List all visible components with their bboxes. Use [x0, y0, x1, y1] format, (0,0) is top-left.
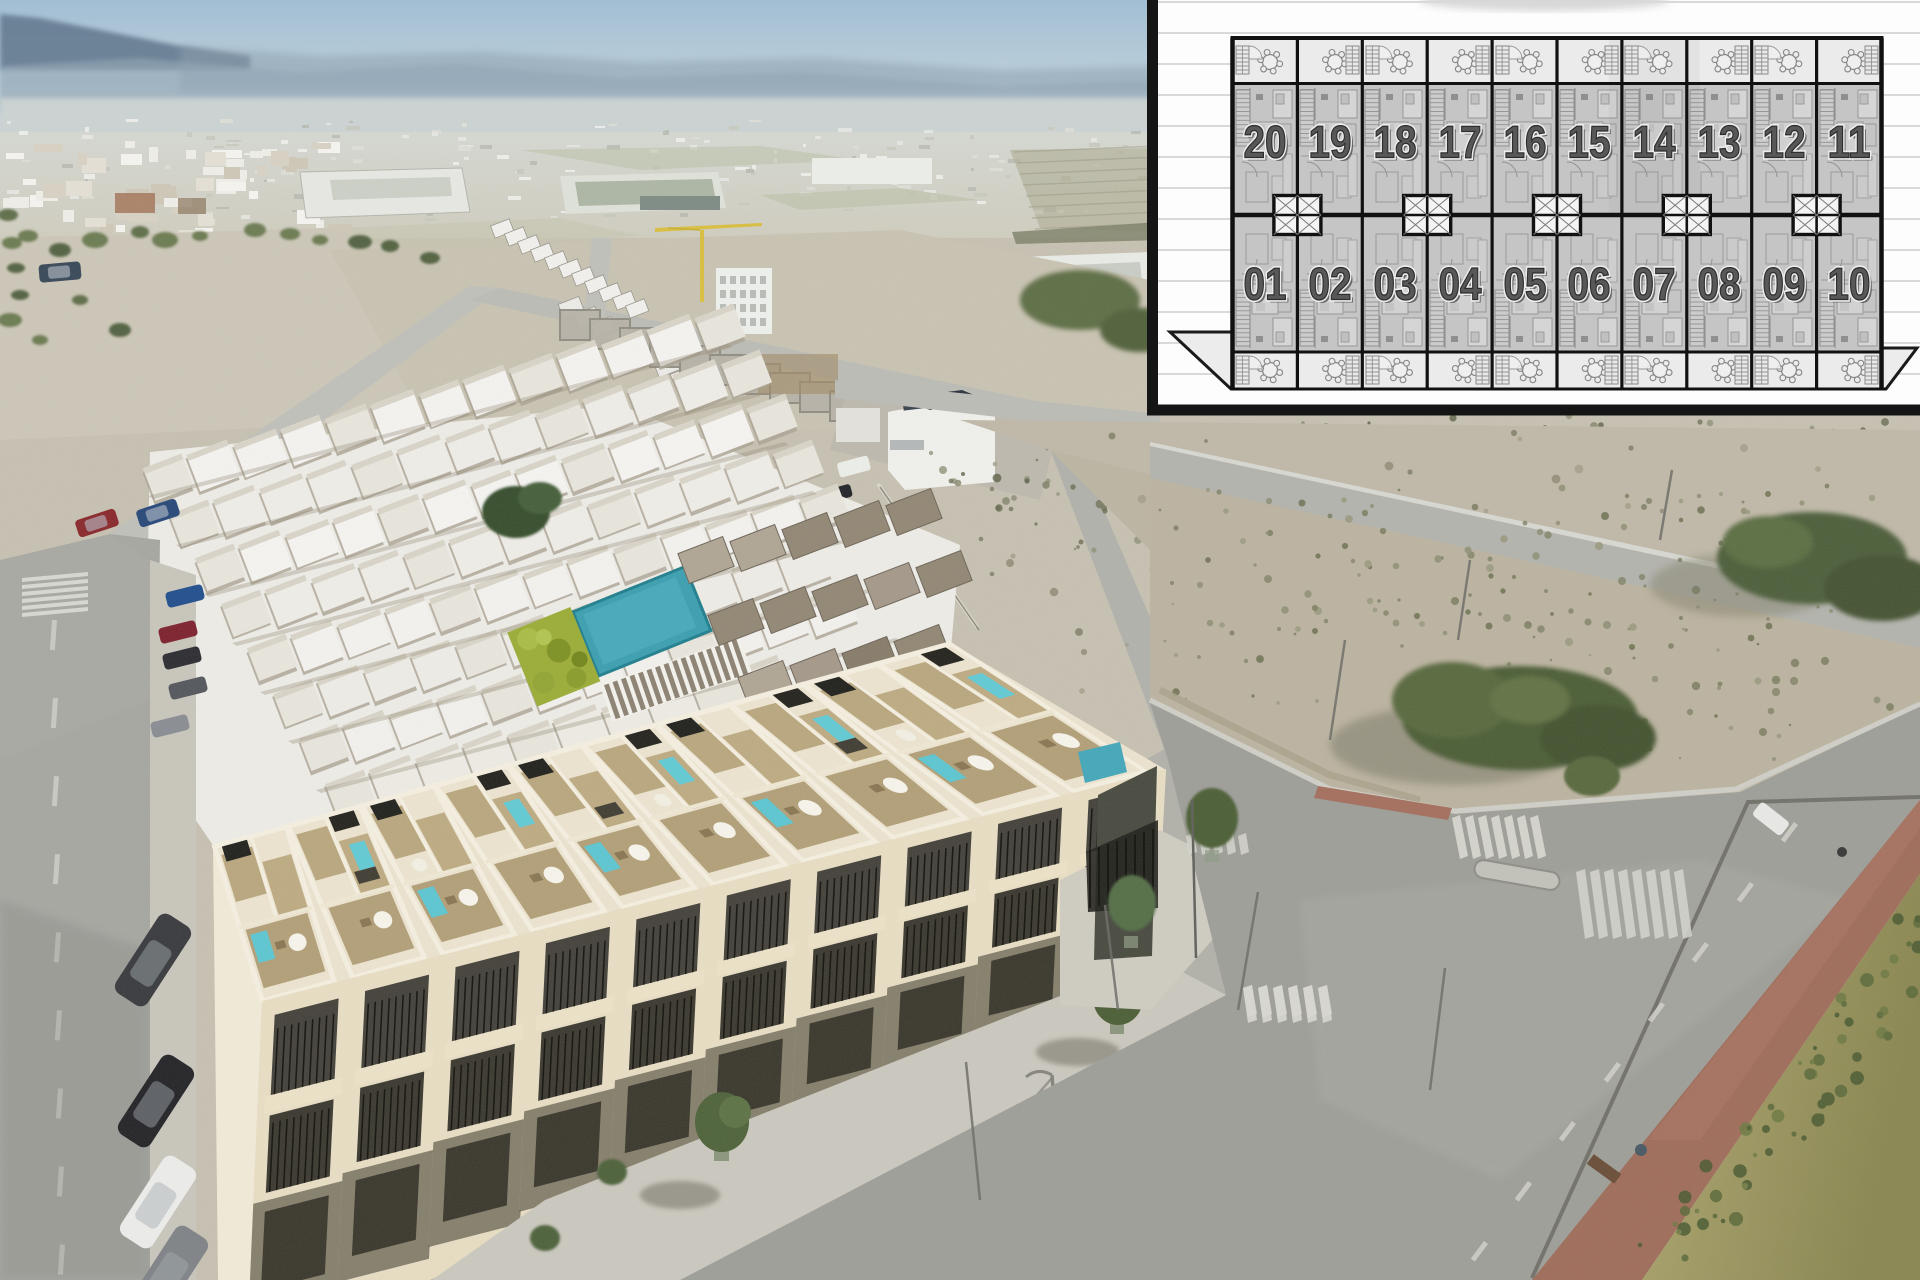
svg-text:11: 11: [1828, 117, 1871, 168]
svg-text:18: 18: [1374, 117, 1417, 168]
svg-text:14: 14: [1633, 117, 1676, 168]
svg-text:01: 01: [1244, 259, 1287, 310]
svg-text:10: 10: [1828, 259, 1871, 310]
svg-text:19: 19: [1309, 117, 1352, 168]
svg-text:13: 13: [1698, 117, 1741, 168]
svg-text:09: 09: [1763, 259, 1806, 310]
svg-text:16: 16: [1504, 117, 1547, 168]
svg-text:07: 07: [1633, 259, 1676, 310]
svg-text:08: 08: [1698, 259, 1741, 310]
svg-text:15: 15: [1568, 117, 1611, 168]
svg-text:05: 05: [1504, 259, 1547, 310]
svg-text:17: 17: [1439, 117, 1482, 168]
svg-text:06: 06: [1568, 259, 1611, 310]
svg-text:02: 02: [1309, 259, 1352, 310]
svg-text:12: 12: [1763, 117, 1806, 168]
svg-text:04: 04: [1439, 259, 1482, 310]
svg-text:20: 20: [1244, 117, 1287, 168]
svg-text:03: 03: [1374, 259, 1417, 310]
